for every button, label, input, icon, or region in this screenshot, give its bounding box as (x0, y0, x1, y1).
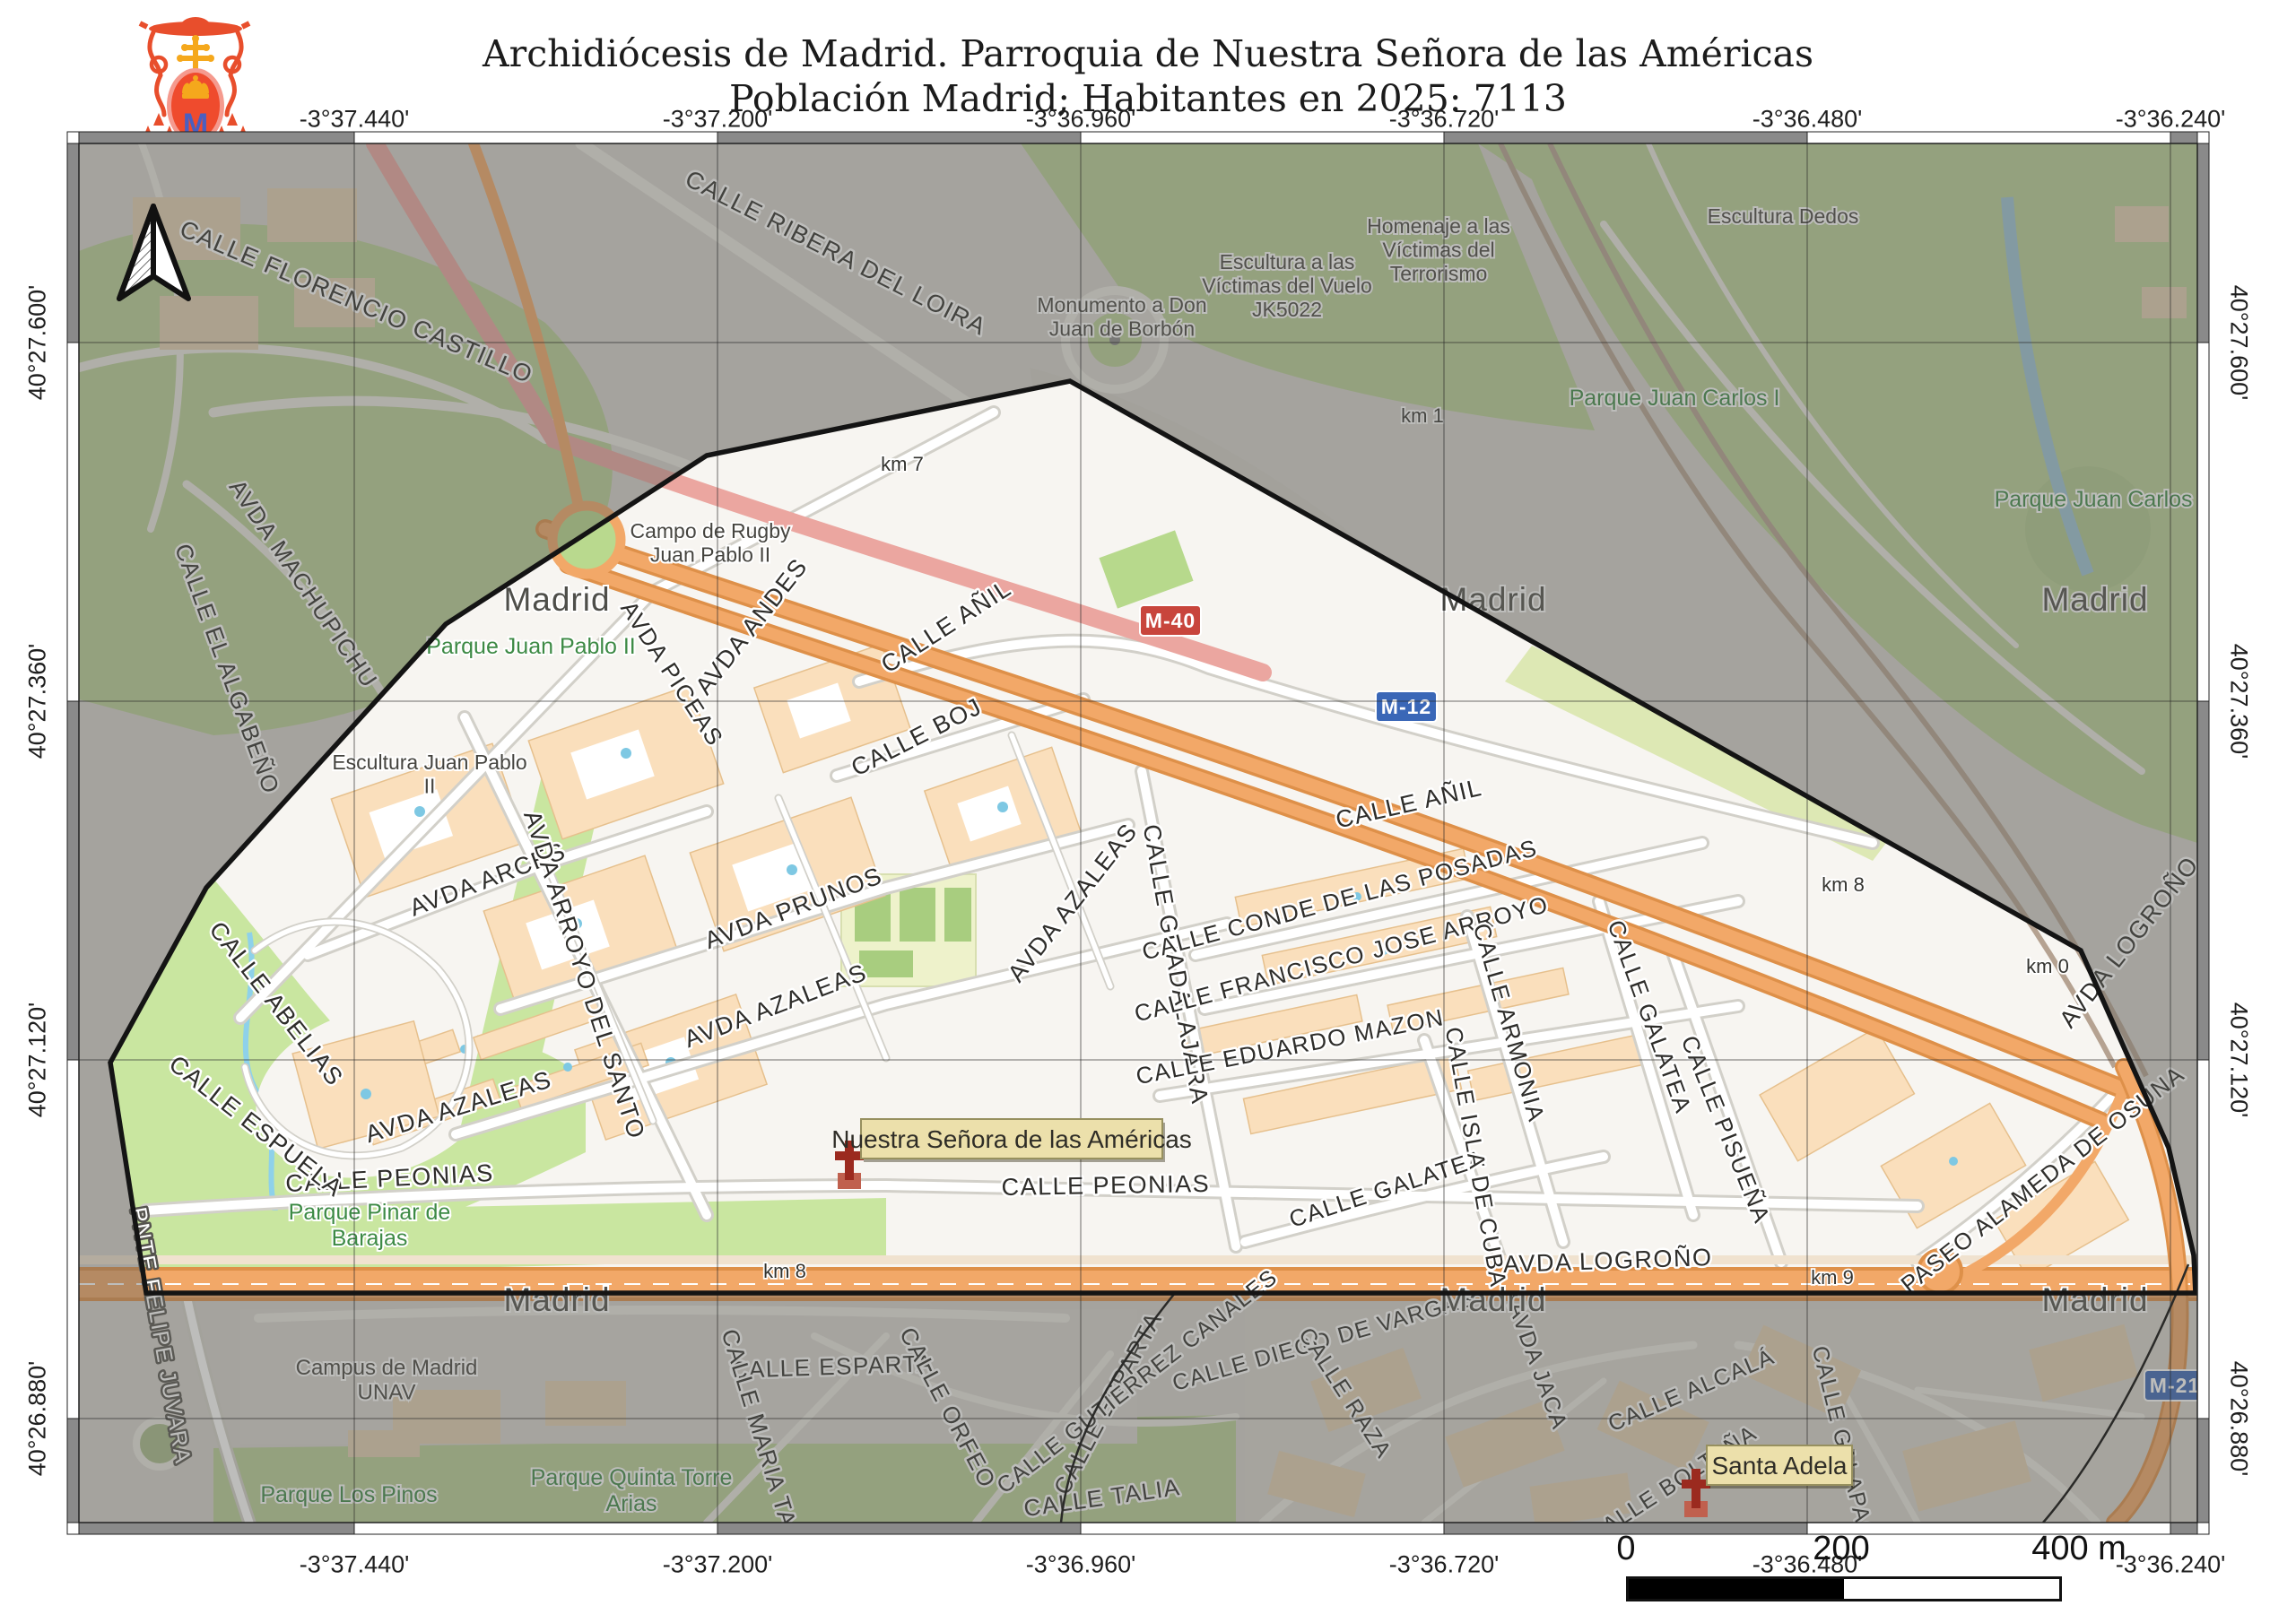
frame-corner (2197, 1523, 2209, 1534)
axis-label: -3°36.240' (2116, 106, 2226, 134)
frame-zebra-segment (354, 132, 717, 143)
archdiocese-coat-of-arms-icon: M (119, 9, 272, 145)
map-canvas[interactable]: CALLE AÑILCALLE BOJAVDA ANDESCALLE AÑILA… (79, 143, 2197, 1523)
frame-zebra-segment (67, 1060, 79, 1419)
frame-zebra-segment (2197, 701, 2209, 1060)
frame-zebra-segment (1081, 1523, 1444, 1534)
frame-zebra-segment (1081, 132, 1444, 143)
frame-zebra-segment (67, 701, 79, 1060)
map-label: km 9 (1811, 1266, 1854, 1289)
logo-monogram: M (183, 108, 208, 142)
frame-corner (67, 1523, 79, 1534)
frame-zebra-segment (2170, 132, 2197, 143)
map-label: km 0 (2026, 955, 2069, 977)
map-label: Madrid (503, 581, 610, 618)
frame-zebra-segment (717, 132, 1081, 143)
frame-corner (2197, 132, 2209, 143)
scalebar-mid: 200 (1813, 1530, 1869, 1568)
frame-zebra-segment (2197, 343, 2209, 701)
map-label: Campo de RugbyJuan Pablo II (631, 519, 791, 566)
frame-zebra-segment (67, 143, 79, 343)
map-label: km 7 (881, 453, 924, 475)
map-label: CALLE PEONIAS (1001, 1170, 1210, 1201)
axis-label: -3°36.720' (1389, 106, 1500, 134)
axis-label: 40°26.880' (2225, 1361, 2253, 1477)
scalebar-bar (1626, 1576, 2062, 1601)
axis-label: 40°27.360' (2225, 644, 2253, 759)
church-marker-label: Santa Adela (1711, 1452, 1847, 1480)
scalebar-zero: 0 (1616, 1530, 1635, 1568)
road-shield-label: M-12 (1381, 695, 1431, 718)
frame-zebra-segment (2197, 1419, 2209, 1523)
axis-label: -3°36.960' (1026, 1551, 1136, 1579)
map-sheet: Archidiócesis de Madrid. Parroquia de Nu… (0, 0, 2296, 1623)
frame-zebra-segment (354, 1523, 717, 1534)
frame-zebra-segment (2170, 1523, 2197, 1534)
map-label: km 8 (763, 1260, 806, 1282)
road-shield-label: M-40 (1145, 609, 1196, 632)
axis-label: -3°37.440' (300, 106, 410, 134)
frame-zebra-segment (1807, 132, 2170, 143)
page-title: Archidiócesis de Madrid. Parroquia de Nu… (0, 32, 2296, 75)
axis-label: 40°27.120' (24, 1002, 52, 1118)
scale-bar: 0 200 400 m (1605, 1530, 2108, 1619)
axis-label: -3°36.720' (1389, 1551, 1500, 1579)
axis-label: 40°26.880' (24, 1361, 52, 1477)
axis-label: -3°36.480' (1752, 106, 1863, 134)
scalebar-fill (1629, 1579, 1844, 1599)
frame-zebra-segment (67, 343, 79, 701)
axis-label: -3°37.200' (663, 106, 773, 134)
church-marker-label: Nuestra Señora de las Américas (831, 1125, 1192, 1153)
frame-zebra-segment (1444, 132, 1807, 143)
map-label: Parque Juan Pablo II (426, 634, 636, 659)
axis-label: -3°37.440' (300, 1551, 410, 1579)
axis-label: 40°27.600' (24, 285, 52, 401)
map-label: km 8 (1822, 873, 1865, 896)
frame-zebra-segment (79, 1523, 354, 1534)
frame-zebra-segment (717, 1523, 1081, 1534)
frame-zebra-segment (67, 1419, 79, 1523)
frame-zebra-segment (2197, 1060, 2209, 1419)
axis-label: -3°36.960' (1026, 106, 1136, 134)
axis-label: 40°27.120' (2225, 1002, 2253, 1118)
map-viewport[interactable]: CALLE AÑILCALLE BOJAVDA ANDESCALLE AÑILA… (79, 143, 2197, 1523)
scalebar-end: 400 m (2031, 1530, 2126, 1568)
axis-label: 40°27.360' (24, 644, 52, 759)
axis-label: -3°36.240' (2116, 1551, 2226, 1579)
axis-label: -3°37.200' (663, 1551, 773, 1579)
frame-zebra-segment (2197, 143, 2209, 343)
axis-label: 40°27.600' (2225, 285, 2253, 401)
frame-corner (67, 132, 79, 143)
